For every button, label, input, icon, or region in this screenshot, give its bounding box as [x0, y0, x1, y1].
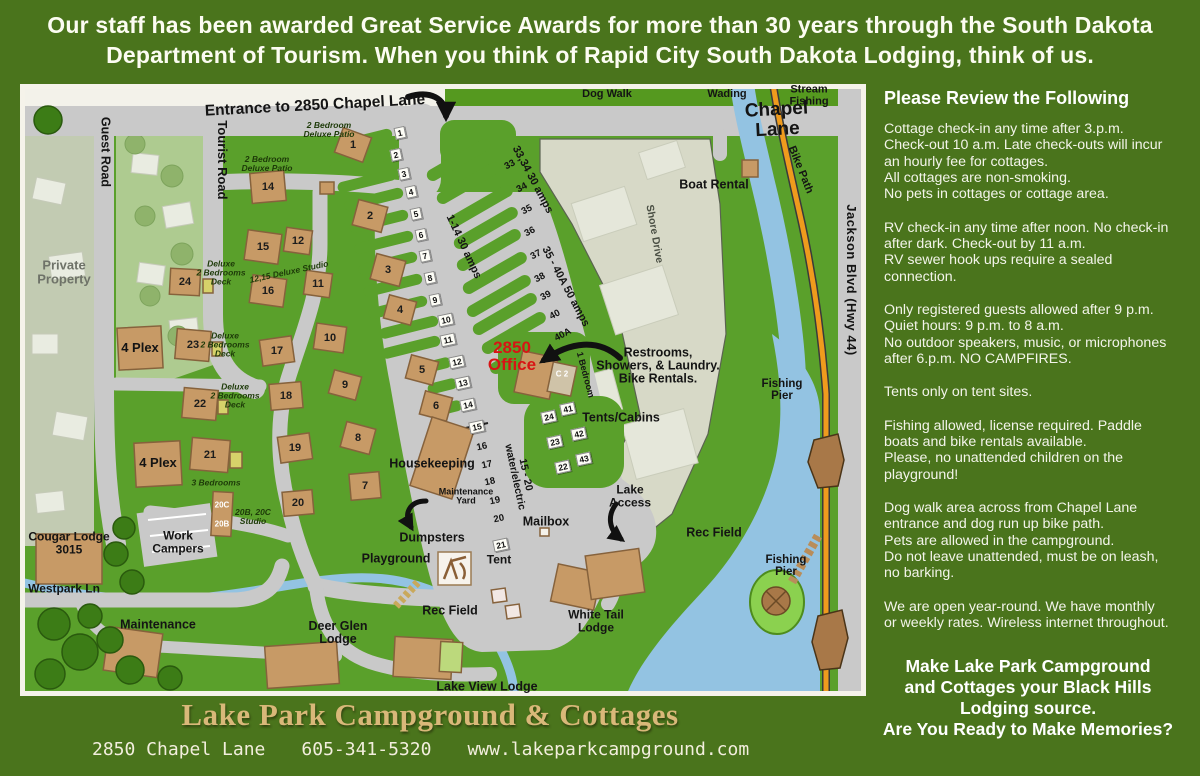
cottage-number: 3	[385, 264, 391, 276]
cottage-number: 23	[187, 339, 199, 351]
cottage-number: 8	[355, 432, 361, 444]
review-panel: Please Review the Following Cottage chec…	[884, 88, 1196, 648]
rv-site: 5	[409, 207, 422, 221]
cottage-number: 18	[280, 390, 292, 402]
panel-paragraph-guests: Only registered guests allowed after 9 p…	[884, 302, 1196, 367]
rv-site: 6	[414, 228, 427, 242]
cottage-number: 2	[367, 210, 373, 222]
panel-paragraph-dogs: Dog walk area across from Chapel Lane en…	[884, 500, 1196, 582]
cottage-number: 14	[262, 181, 274, 193]
cottage-number: 22	[194, 398, 206, 410]
rv-site: 1	[393, 126, 406, 140]
panel-paragraph-cottages: Cottage check-in any time after 3.p.m. C…	[884, 121, 1196, 203]
building-20b-label: 20B	[215, 520, 230, 529]
cottage-number: 19	[289, 442, 301, 454]
playground-icon	[438, 552, 471, 585]
footer-phone: 605-341-5320	[301, 739, 431, 760]
rv-site: 8	[423, 271, 436, 285]
rv-site: 4	[404, 185, 417, 199]
rv-site: 7	[418, 249, 431, 263]
cottage-number: 10	[324, 332, 336, 344]
panel-paragraph-open: We are open year-round. We have monthly …	[884, 599, 1196, 632]
cottage-number: 21	[204, 449, 216, 461]
cottage-number: 4	[397, 304, 403, 316]
panel-title: Please Review the Following	[884, 88, 1196, 109]
cottage-number: 12	[292, 235, 304, 247]
panel-paragraph-rv: RV check-in any time after noon. No chec…	[884, 220, 1196, 285]
cottage-number: 6	[433, 400, 439, 412]
campground-name: Lake Park Campground & Cottages	[150, 697, 710, 733]
awards-banner: Our staff has been awarded Great Service…	[0, 11, 1200, 71]
cottage-number: 24	[179, 276, 191, 288]
panel-paragraph-tents: Tents only on tent sites.	[884, 384, 1196, 400]
panel-paragraph-fishing: Fishing allowed, license required. Paddl…	[884, 418, 1196, 483]
footer-address: 2850 Chapel Lane	[92, 739, 265, 760]
campground-map-graphic	[20, 84, 866, 696]
cottage-number: 7	[362, 480, 368, 492]
cottage-number: 15	[257, 241, 269, 253]
campground-map: Entrance to 2850 Chapel Lane Chapel Lane…	[20, 84, 866, 696]
cottage-number: 11	[312, 278, 324, 290]
rv-site: 9	[428, 293, 441, 307]
footer-website: www.lakeparkcampground.com	[467, 739, 749, 760]
cottage-number: 9	[342, 379, 348, 391]
closing-message: Make Lake Park Campground and Cottages y…	[856, 656, 1200, 740]
cottage-number: 16	[262, 285, 274, 297]
building-20c-label: 20C	[215, 501, 230, 510]
footer-contact: 2850 Chapel Lane 605-341-5320 www.lakepa…	[92, 739, 749, 760]
cottage-number: 5	[419, 364, 425, 376]
cottage-number: 17	[271, 345, 283, 357]
rv-site: 3	[397, 167, 410, 181]
rv-site: 2	[389, 148, 402, 162]
cottage-number: 1	[350, 139, 356, 151]
cottage-number: 20	[292, 497, 304, 509]
